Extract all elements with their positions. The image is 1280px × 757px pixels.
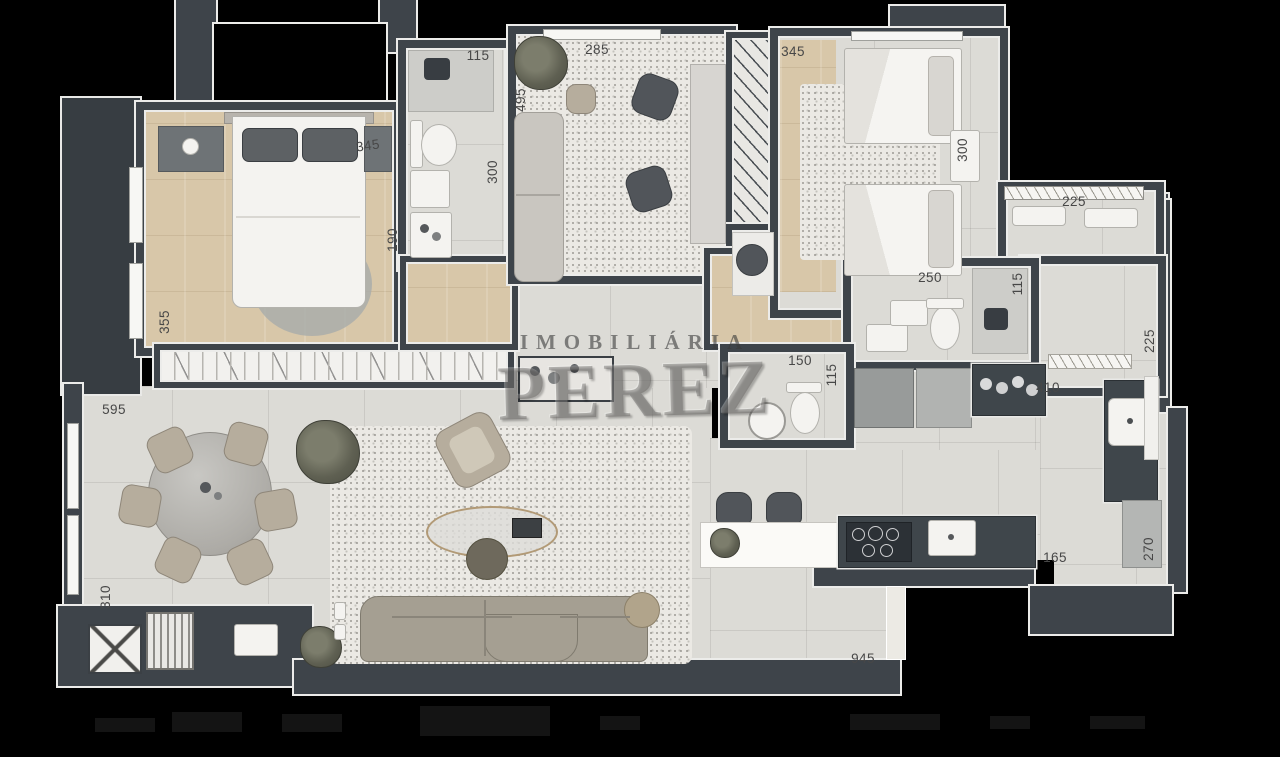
shower-head — [984, 308, 1008, 330]
desk — [690, 64, 726, 244]
window — [544, 30, 660, 39]
dim-label: 115 — [455, 48, 501, 64]
wall-objects — [334, 602, 346, 620]
footer-faint-marks — [1090, 716, 1145, 729]
wall-column — [176, 0, 216, 112]
vent-grille — [146, 612, 194, 670]
footer-faint-marks — [420, 706, 550, 736]
burner — [1012, 376, 1024, 388]
shower-head — [424, 58, 450, 80]
bathroom-counter — [410, 212, 452, 258]
ottoman — [466, 538, 508, 580]
dim-label: 115 — [1010, 261, 1026, 307]
dim-label: 495 — [513, 77, 529, 123]
bench — [1084, 208, 1138, 228]
wall-niche — [234, 624, 278, 656]
sofa-seam — [392, 616, 512, 618]
wall-bottom-middle — [294, 660, 900, 694]
den-sofa — [514, 112, 564, 282]
footer-faint-marks — [600, 716, 640, 730]
dining-chair — [117, 483, 163, 529]
outer-wall-band — [60, 96, 142, 396]
dim-label: 115 — [824, 352, 840, 398]
console-decor — [530, 366, 540, 376]
footer-faint-marks — [95, 718, 155, 732]
toilet-tank — [926, 298, 964, 309]
service-shelf — [1144, 376, 1159, 460]
dim-label: 165 — [1032, 550, 1078, 566]
window — [852, 32, 962, 40]
toilet — [930, 306, 960, 350]
dim-label: 225 — [1142, 318, 1158, 364]
entry-threshold — [1048, 354, 1132, 369]
pillow — [928, 56, 954, 136]
dim-label: 410 — [1025, 380, 1071, 396]
island-plant-decor — [710, 528, 740, 558]
burner — [980, 378, 992, 390]
window — [68, 516, 78, 594]
ac-condenser-unit — [88, 624, 142, 674]
footer-faint-marks — [172, 712, 242, 732]
dim-label: 250 — [907, 270, 953, 286]
table-centerpiece — [200, 482, 211, 493]
cabinet — [916, 368, 972, 428]
dim-label: 285 — [574, 42, 620, 58]
table-lamp — [182, 138, 199, 155]
window — [130, 264, 142, 338]
corridor-bedroom-1 — [400, 256, 518, 350]
side-table — [624, 592, 660, 628]
tub-drain — [1127, 418, 1133, 424]
dim-label: 150 — [777, 353, 823, 369]
magazine — [512, 518, 542, 538]
window — [130, 168, 142, 242]
decor-plates — [432, 232, 441, 241]
bar-stool — [716, 492, 752, 524]
dim-label: 595 — [91, 402, 137, 418]
dim-label: 225 — [1051, 194, 1097, 210]
burner — [996, 382, 1008, 394]
cooktop-burner — [880, 544, 893, 557]
dim-label: 310 — [98, 574, 114, 620]
cooktop-burner — [886, 528, 899, 541]
sofa-seam — [560, 616, 630, 618]
window — [68, 424, 78, 508]
floor-plan-canvas: 345 190 355 115 300 285 495 345 300 225 … — [0, 0, 1280, 757]
sofa-chaise — [484, 614, 578, 662]
footer-faint-marks — [990, 716, 1030, 729]
wall-right-outer-lower — [1168, 408, 1186, 592]
cooktop-burner — [868, 526, 883, 541]
round-washbasin — [748, 402, 786, 440]
desk-chair — [736, 244, 768, 276]
den-sofa-seam — [516, 194, 560, 196]
cooktop-burner — [852, 528, 865, 541]
footer-faint-marks — [850, 714, 940, 730]
toilet — [421, 124, 457, 166]
table-centerpiece — [214, 492, 222, 500]
dim-label: 190 — [385, 217, 401, 263]
sink-drain — [948, 534, 954, 540]
bar-stool — [766, 492, 802, 524]
dim-label: 345 — [770, 44, 816, 60]
pouf — [566, 84, 596, 114]
dim-label: 355 — [157, 299, 173, 345]
wall-service-bottom — [1030, 586, 1172, 634]
dim-label: 270 — [1141, 526, 1157, 572]
console-decor — [548, 372, 560, 384]
wall-objects — [334, 624, 346, 640]
decor-plates — [420, 224, 429, 233]
balcony-deck — [154, 344, 514, 388]
cooktop-burner — [862, 544, 875, 557]
footer-faint-marks — [282, 714, 342, 732]
dim-label: 945 — [840, 651, 886, 667]
console-decor — [570, 364, 579, 373]
console-table — [518, 356, 614, 402]
washbasin-counter — [890, 300, 928, 326]
pillow — [242, 128, 298, 162]
toilet — [790, 392, 820, 434]
sofa-seam — [484, 600, 486, 656]
bed-sheet-fold — [236, 216, 360, 218]
dim-label: 300 — [485, 149, 501, 195]
refrigerator — [854, 368, 914, 428]
dim-label: 300 — [955, 127, 971, 173]
bathroom-vanity — [866, 324, 908, 352]
marble-pillar — [886, 586, 906, 660]
floor-plant — [296, 420, 360, 484]
bathroom-vanity — [410, 170, 450, 208]
pillow — [928, 190, 954, 268]
dining-chair — [253, 487, 299, 533]
